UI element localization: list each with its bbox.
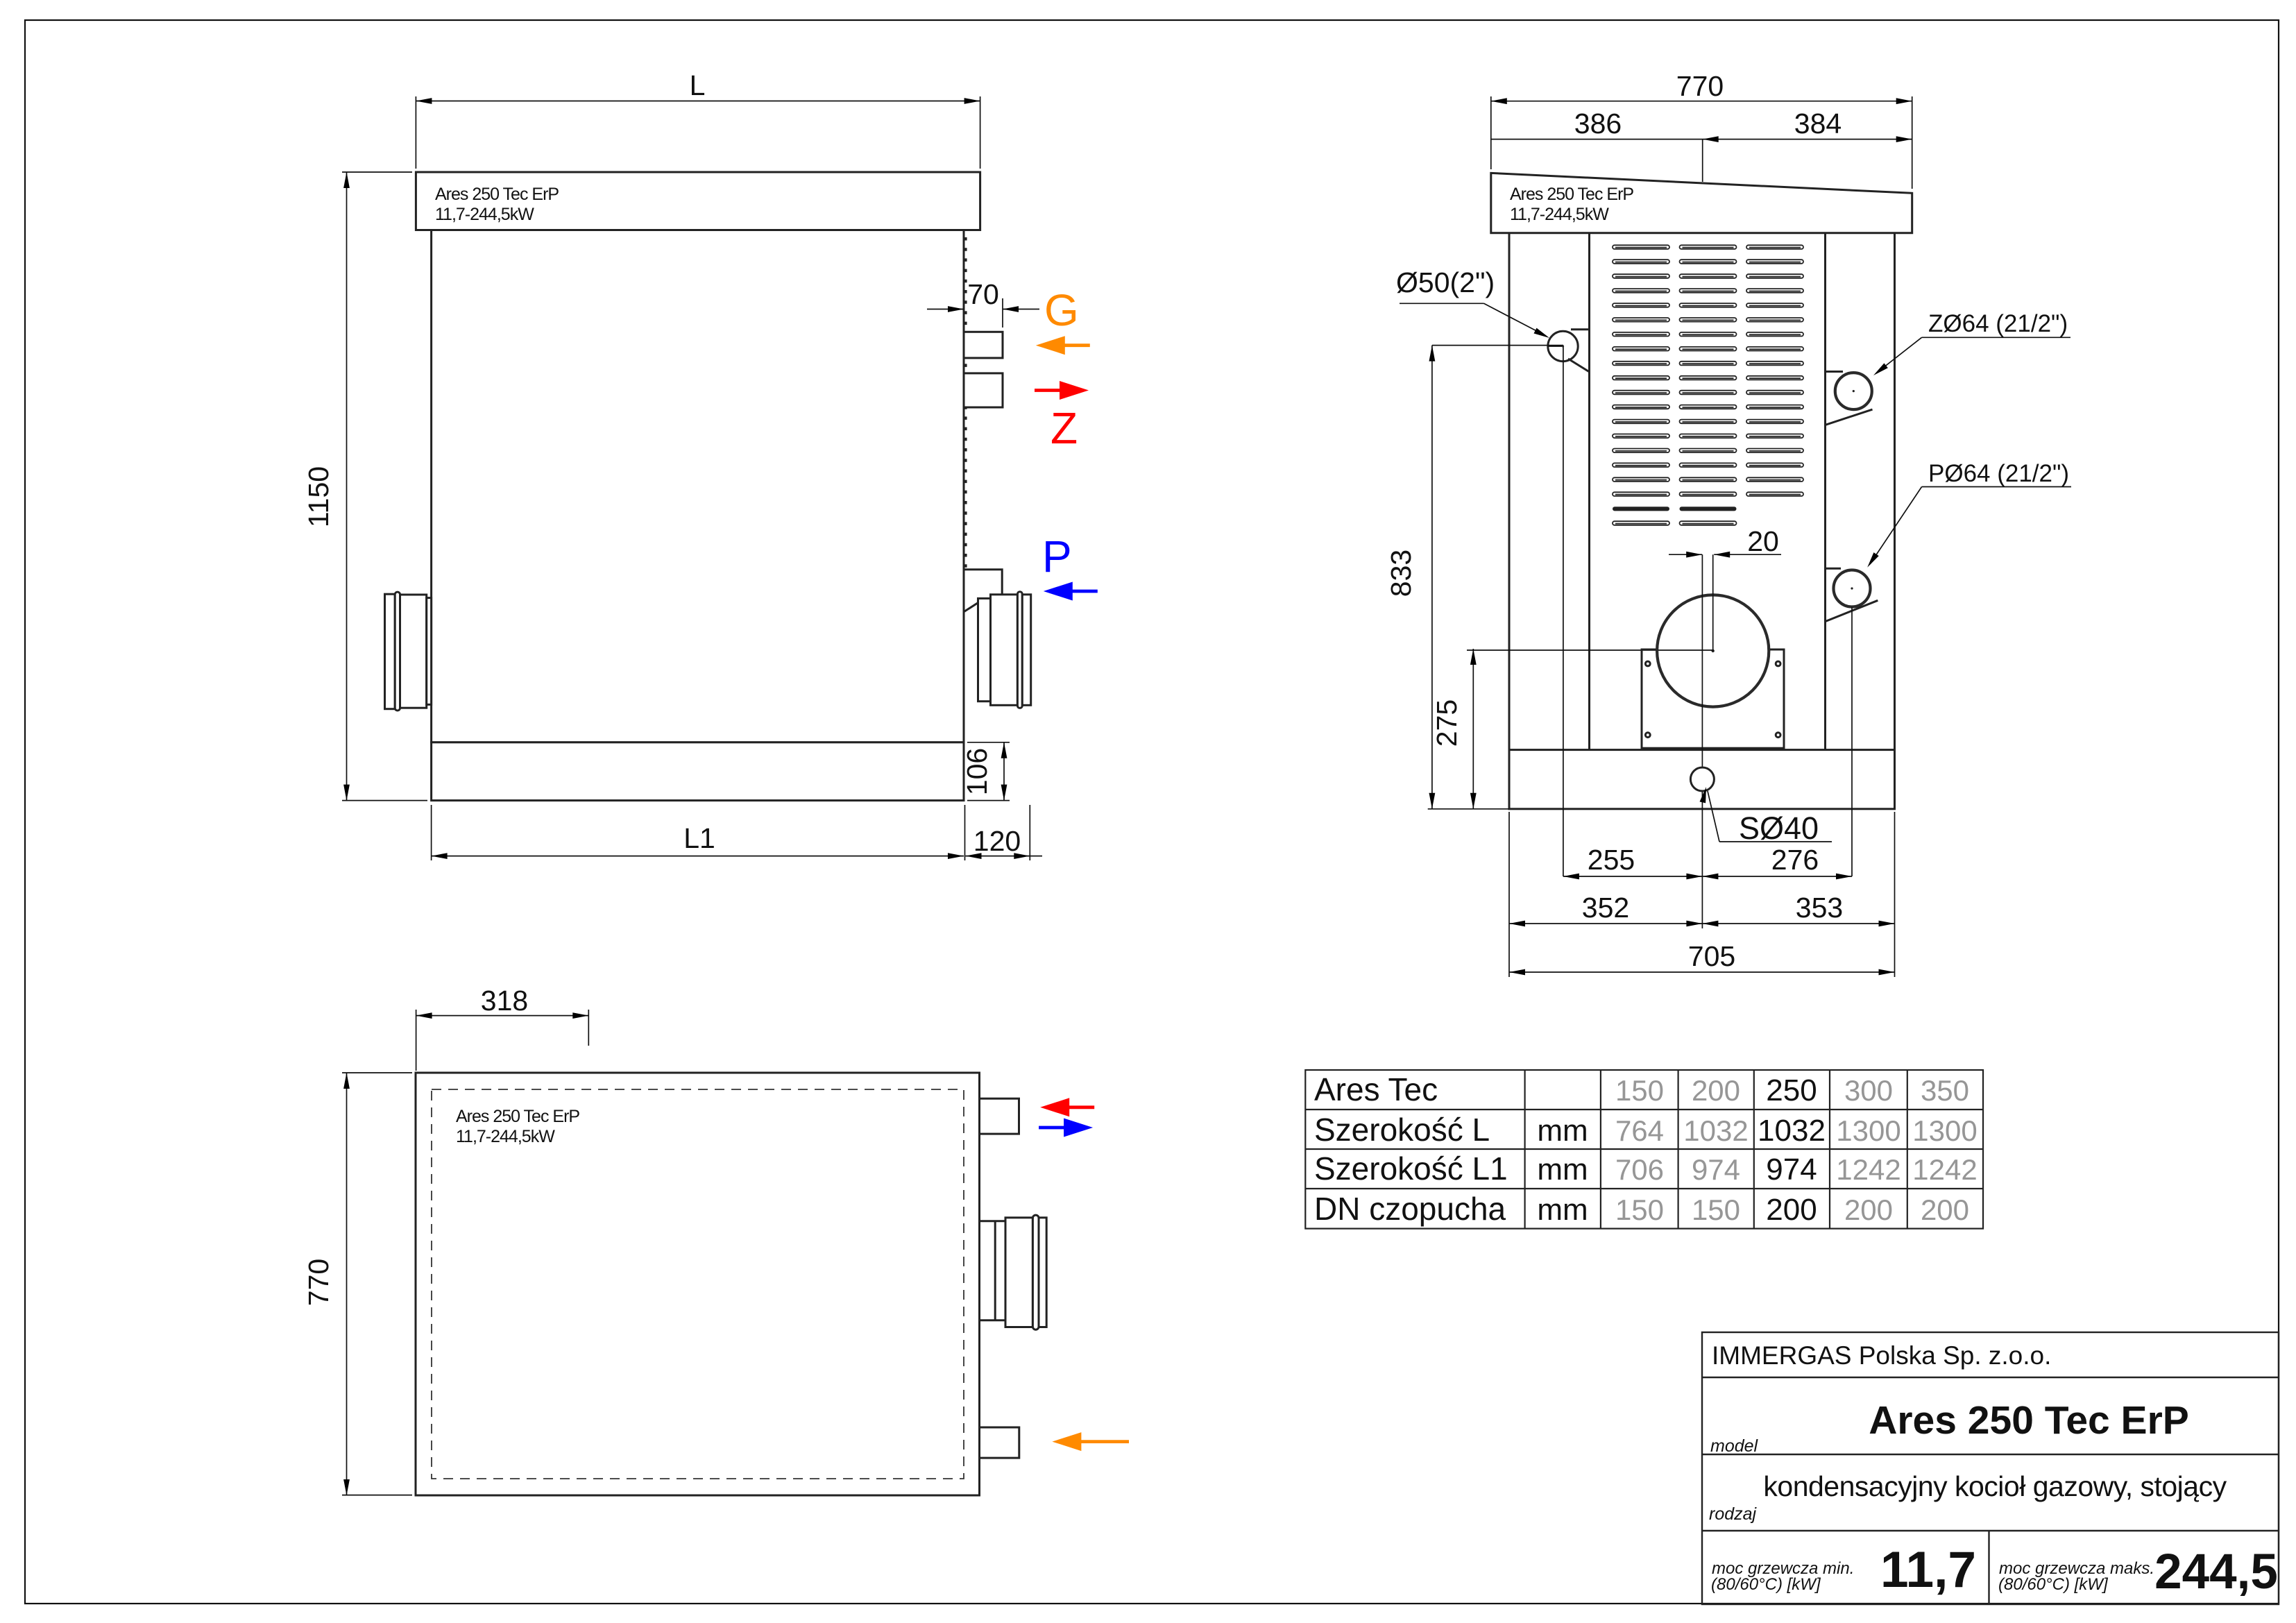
svg-text:70: 70 bbox=[967, 278, 999, 310]
svg-text:706: 706 bbox=[1615, 1153, 1664, 1186]
svg-text:764: 764 bbox=[1615, 1114, 1664, 1147]
svg-text:11,7-244,5kW: 11,7-244,5kW bbox=[435, 205, 534, 224]
svg-text:974: 974 bbox=[1692, 1153, 1740, 1186]
svg-text:1242: 1242 bbox=[1836, 1153, 1900, 1186]
svg-text:770: 770 bbox=[1676, 70, 1724, 102]
svg-text:11,7-244,5kW: 11,7-244,5kW bbox=[456, 1127, 555, 1146]
svg-text:PØ64 (21/2"): PØ64 (21/2") bbox=[1928, 460, 2069, 487]
svg-text:244,5: 244,5 bbox=[2154, 1545, 2278, 1599]
svg-text:Ares 250 Tec ErP: Ares 250 Tec ErP bbox=[1510, 185, 1633, 204]
svg-text:Ares 250 Tec ErP: Ares 250 Tec ErP bbox=[435, 185, 559, 204]
svg-text:200: 200 bbox=[1766, 1193, 1817, 1227]
svg-text:ZØ64 (21/2"): ZØ64 (21/2") bbox=[1928, 310, 2068, 337]
svg-text:mm: mm bbox=[1537, 1193, 1588, 1227]
svg-text:kondensacyjny kocioł gazowy, s: kondensacyjny kocioł gazowy, stojący bbox=[1763, 1470, 2227, 1502]
svg-text:770: 770 bbox=[303, 1259, 334, 1306]
svg-text:1032: 1032 bbox=[1683, 1114, 1748, 1147]
svg-text:mm: mm bbox=[1537, 1114, 1588, 1148]
svg-text:705: 705 bbox=[1688, 940, 1735, 972]
svg-text:350: 350 bbox=[1921, 1074, 1969, 1107]
svg-text:255: 255 bbox=[1588, 844, 1635, 876]
svg-text:mm: mm bbox=[1537, 1153, 1588, 1187]
svg-text:318: 318 bbox=[481, 985, 528, 1017]
svg-text:384: 384 bbox=[1794, 108, 1842, 139]
svg-text:P: P bbox=[1042, 532, 1072, 581]
svg-text:11,7-244,5kW: 11,7-244,5kW bbox=[1510, 205, 1609, 224]
svg-text:Ares Tec: Ares Tec bbox=[1314, 1071, 1438, 1107]
svg-text:275: 275 bbox=[1431, 699, 1463, 747]
svg-text:Ares 250 Tec ErP: Ares 250 Tec ErP bbox=[1869, 1398, 2189, 1443]
svg-text:1300: 1300 bbox=[1912, 1114, 1977, 1147]
svg-text:352: 352 bbox=[1582, 892, 1629, 924]
svg-text:Ø50(2"): Ø50(2") bbox=[1396, 266, 1495, 298]
svg-text:200: 200 bbox=[1844, 1193, 1893, 1226]
svg-text:L1: L1 bbox=[683, 822, 715, 854]
svg-text:974: 974 bbox=[1766, 1153, 1817, 1187]
svg-text:(80/60°C) [kW]: (80/60°C) [kW] bbox=[1711, 1575, 1821, 1594]
svg-text:353: 353 bbox=[1796, 892, 1843, 924]
svg-text:11,7: 11,7 bbox=[1880, 1542, 1976, 1598]
svg-text:Szerokość L1: Szerokość L1 bbox=[1314, 1150, 1508, 1187]
svg-text:106: 106 bbox=[961, 748, 993, 795]
svg-text:150: 150 bbox=[1615, 1074, 1664, 1107]
svg-text:1032: 1032 bbox=[1758, 1114, 1826, 1148]
svg-text:DN czopucha: DN czopucha bbox=[1314, 1191, 1506, 1227]
svg-text:G: G bbox=[1044, 285, 1079, 335]
svg-text:120: 120 bbox=[973, 825, 1021, 857]
svg-text:833: 833 bbox=[1385, 550, 1417, 597]
svg-text:Z: Z bbox=[1051, 403, 1078, 453]
svg-text:L: L bbox=[690, 69, 706, 101]
svg-text:150: 150 bbox=[1615, 1193, 1664, 1226]
svg-text:IMMERGAS Polska Sp. z.o.o.: IMMERGAS Polska Sp. z.o.o. bbox=[1712, 1341, 2051, 1370]
svg-text:1242: 1242 bbox=[1912, 1153, 1977, 1186]
svg-text:250: 250 bbox=[1766, 1073, 1817, 1107]
svg-text:model: model bbox=[1710, 1436, 1759, 1456]
svg-text:1150: 1150 bbox=[303, 466, 334, 527]
svg-text:20: 20 bbox=[1747, 525, 1779, 557]
svg-text:SØ40: SØ40 bbox=[1739, 810, 1819, 846]
svg-text:150: 150 bbox=[1692, 1193, 1740, 1226]
svg-text:1300: 1300 bbox=[1836, 1114, 1900, 1147]
svg-text:200: 200 bbox=[1921, 1193, 1969, 1226]
svg-text:300: 300 bbox=[1844, 1074, 1893, 1107]
svg-text:Ares 250 Tec ErP: Ares 250 Tec ErP bbox=[456, 1107, 579, 1126]
svg-text:200: 200 bbox=[1692, 1074, 1740, 1107]
svg-text:rodzaj: rodzaj bbox=[1709, 1504, 1758, 1524]
svg-text:276: 276 bbox=[1771, 844, 1819, 876]
svg-text:(80/60°C) [kW]: (80/60°C) [kW] bbox=[1998, 1575, 2109, 1594]
svg-text:386: 386 bbox=[1574, 108, 1622, 139]
svg-text:Szerokość L: Szerokość L bbox=[1314, 1112, 1490, 1148]
